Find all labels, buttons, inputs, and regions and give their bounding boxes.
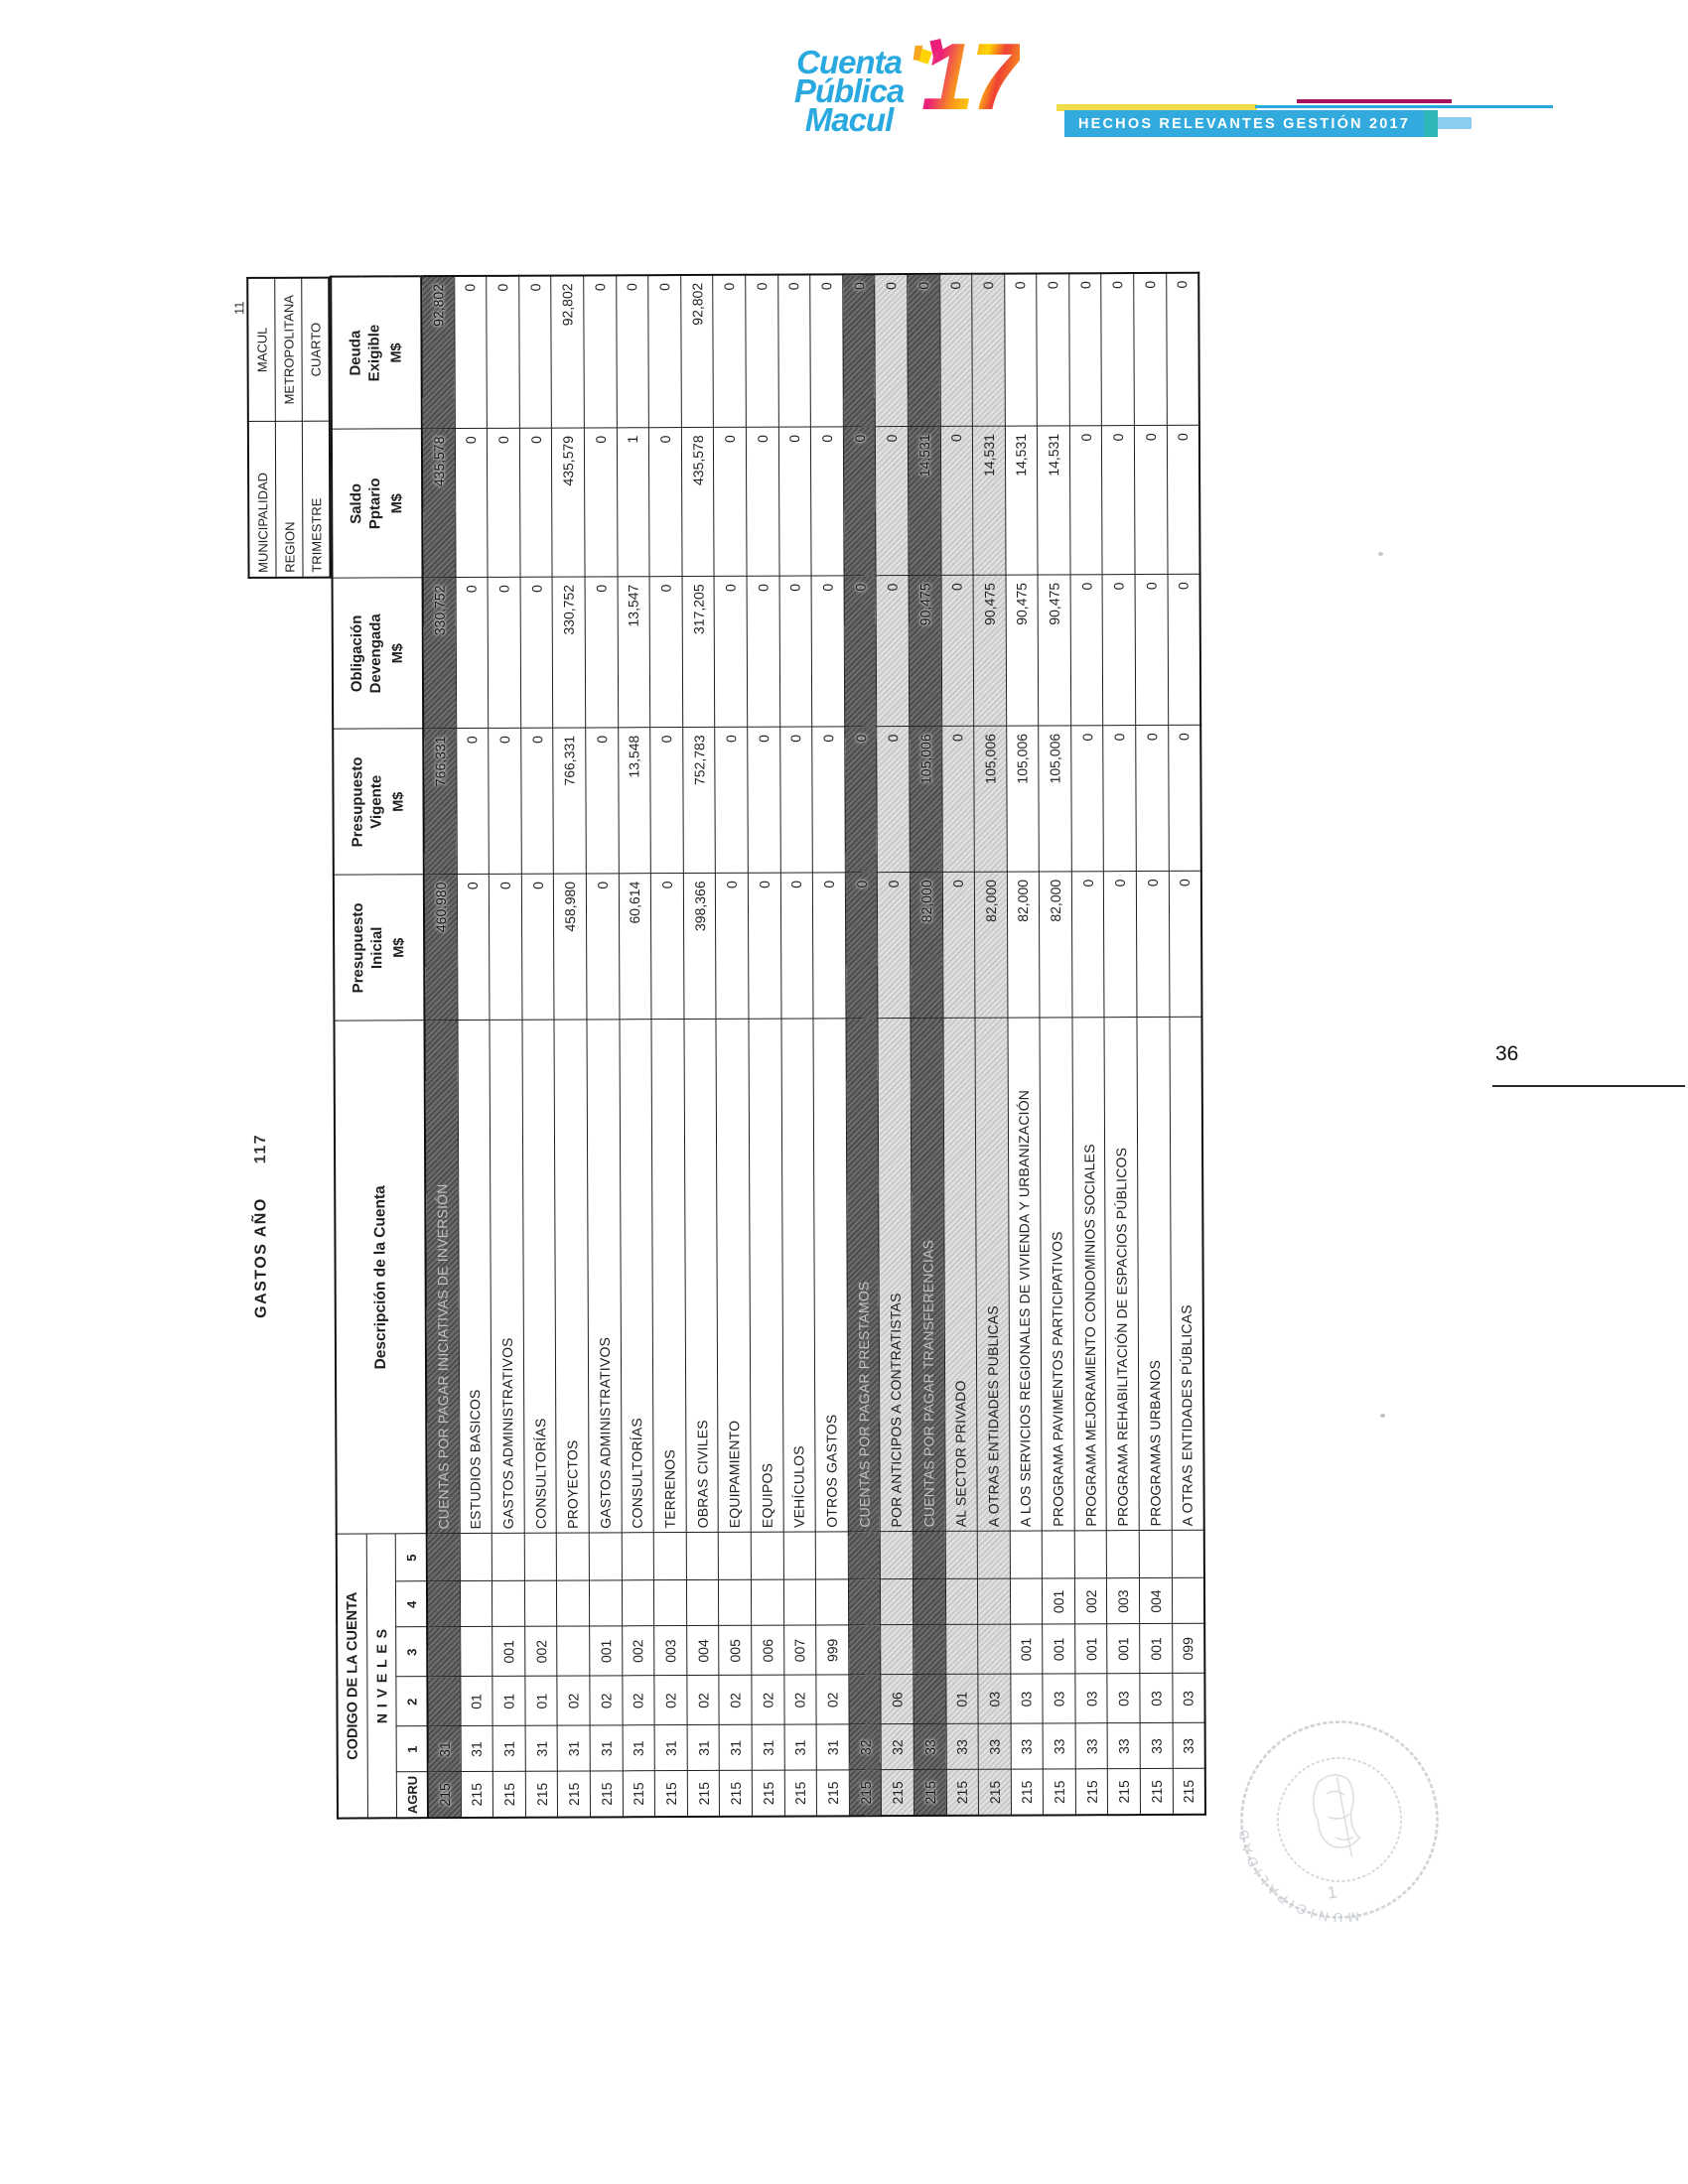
cell-nivel-3: 001: [1107, 1624, 1140, 1674]
cell-nivel-1: 31: [654, 1725, 687, 1771]
header-line: Saldo: [348, 431, 366, 577]
scan-speck: [1378, 552, 1383, 556]
cell-agru: 215: [492, 1772, 525, 1818]
cell-nivel-2: 01: [525, 1677, 558, 1726]
info-label-region: REGION: [275, 421, 303, 578]
cell-agru: 215: [525, 1772, 558, 1818]
cell-presupuesto-inicial: 0: [1169, 872, 1202, 1018]
cell-saldo-pptario: 14,531: [908, 427, 940, 576]
cell-presupuesto-vigente: 0: [586, 728, 619, 874]
header-descripcion: Descripción de la Cuenta: [334, 1021, 426, 1534]
cell-nivel-5: [1107, 1531, 1140, 1578]
header-presupuesto-vigente: Presupuesto Vigente M$: [333, 729, 424, 875]
banner-bar: HECHOS RELEVANTES GESTIÓN 2017: [1064, 110, 1424, 137]
cell-presupuesto-vigente: 0: [779, 727, 812, 873]
cell-nivel-5: [913, 1532, 945, 1579]
cell-nivel-1: 31: [784, 1724, 817, 1770]
cell-deuda-exigible: 0: [875, 274, 908, 427]
cell-presupuesto-inicial: 0: [716, 874, 749, 1020]
cell-nivel-2: 06: [881, 1675, 914, 1724]
cell-deuda-exigible: 0: [648, 275, 681, 428]
cell-presupuesto-vigente: 105,006: [910, 727, 942, 873]
cell-saldo-pptario: 0: [811, 427, 844, 576]
cell-descripcion: A OTRAS ENTIDADES PUBLICAS: [975, 1019, 1010, 1532]
cell-nivel-4: [460, 1581, 492, 1627]
cell-nivel-2: 02: [654, 1676, 687, 1725]
cell-presupuesto-inicial: 60,614: [619, 874, 651, 1020]
cell-nivel-3: [945, 1625, 978, 1675]
cell-agru: 215: [1075, 1769, 1108, 1815]
cell-saldo-pptario: 0: [519, 429, 552, 578]
cell-nivel-3: 006: [752, 1626, 784, 1676]
cell-agru: 215: [1108, 1769, 1141, 1815]
cell-presupuesto-vigente: 0: [1136, 726, 1169, 872]
cell-nivel-5: [751, 1533, 783, 1580]
cell-nivel-3: 007: [783, 1625, 816, 1675]
cell-presupuesto-vigente: 0: [650, 728, 683, 874]
cell-obligacion-devengada: 330,752: [423, 578, 457, 729]
cell-agru: 215: [1173, 1769, 1205, 1815]
header-line: Deuda: [347, 278, 365, 428]
cell-nivel-1: 33: [978, 1724, 1011, 1770]
stamp-inner-circle: [1269, 1749, 1410, 1890]
cell-nivel-4: [751, 1580, 783, 1626]
cell-saldo-pptario: 0: [778, 427, 811, 576]
cell-nivel-2: 02: [557, 1676, 590, 1725]
cell-nivel-3: 001: [1043, 1624, 1075, 1674]
cell-presupuesto-vigente: 13,548: [618, 728, 650, 874]
cell-nivel-3: [460, 1627, 492, 1677]
cell-obligacion-devengada: 90,475: [1038, 575, 1070, 726]
cell-nivel-3: [914, 1625, 946, 1675]
cell-descripcion: CUENTAS POR PAGAR TRANSFERENCIAS: [911, 1019, 945, 1532]
cell-nivel-2: 02: [719, 1676, 752, 1725]
cell-presupuesto-inicial: 0: [1071, 872, 1104, 1018]
cell-deuda-exigible: 92,802: [680, 275, 713, 428]
cell-obligacion-devengada: 0: [488, 578, 520, 729]
cell-nivel-4: [1010, 1578, 1043, 1624]
report-title-year: 117: [252, 1134, 269, 1163]
rotated-report-sheet: 11 GASTOS AÑO117 MUNICIPALIDAD MACUL REG…: [233, 271, 1130, 1820]
cell-obligacion-devengada: 0: [1135, 575, 1168, 726]
cell-nivel-5: [1043, 1531, 1075, 1578]
cell-nivel-3: 001: [1140, 1624, 1173, 1674]
info-label-municipalidad: MUNICIPALIDAD: [248, 421, 276, 578]
cell-deuda-exigible: 0: [842, 274, 875, 427]
cell-descripcion: CONSULTORÍAS: [620, 1020, 654, 1533]
header-level-2: 2: [396, 1677, 428, 1726]
banner-tail-line: [1438, 117, 1472, 129]
cell-agru: 215: [461, 1772, 493, 1818]
cell-nivel-4: [524, 1581, 557, 1627]
cell-presupuesto-inicial: 398,366: [683, 874, 716, 1020]
header-line: Obligación: [349, 580, 367, 728]
cell-nivel-2: 03: [1173, 1674, 1205, 1723]
info-value-cuarto: CUARTO: [302, 278, 330, 422]
banner-teal-endcap: [1424, 110, 1438, 137]
cell-presupuesto-inicial: 0: [521, 875, 554, 1021]
cell-deuda-exigible: 0: [616, 275, 648, 428]
cell-agru: 215: [654, 1771, 687, 1817]
cell-nivel-2: 02: [816, 1675, 849, 1724]
cell-presupuesto-inicial: 458,980: [554, 874, 587, 1020]
cell-presupuesto-inicial: 0: [490, 875, 522, 1021]
cell-obligacion-devengada: 90,475: [973, 576, 1006, 727]
cell-nivel-4: [848, 1579, 881, 1625]
cell-nivel-5: [1172, 1531, 1204, 1578]
cell-presupuesto-vigente: 105,006: [1006, 726, 1039, 872]
cell-nivel-2: 01: [945, 1675, 978, 1724]
cell-descripcion: PROGRAMAS URBANOS: [1137, 1018, 1172, 1531]
cell-presupuesto-vigente: 0: [715, 728, 748, 874]
page-number-rule: [1492, 1085, 1685, 1087]
cell-nivel-2: 01: [492, 1677, 525, 1726]
header-saldo-pptario: Saldo Pptario M$: [332, 429, 423, 578]
cell-descripcion: CUENTAS POR PAGAR PRESTAMOS: [846, 1019, 881, 1532]
cell-agru: 215: [882, 1770, 914, 1816]
banner-blue-line: [1255, 105, 1553, 108]
cell-nivel-5: [622, 1533, 654, 1580]
info-label-trimestre: TRIMESTRE: [302, 421, 330, 578]
report-title: GASTOS AÑO117: [252, 1134, 271, 1318]
header-line: Inicial: [368, 877, 387, 1020]
cell-nivel-5: [524, 1534, 557, 1581]
info-row: MUNICIPALIDAD MACUL: [247, 278, 276, 578]
header-line: Presupuesto: [349, 731, 367, 874]
info-row: TRIMESTRE CUARTO: [302, 278, 331, 578]
cell-presupuesto-vigente: 0: [520, 729, 553, 875]
cell-nivel-2: [849, 1675, 882, 1724]
cell-nivel-3: [848, 1625, 881, 1675]
cell-obligacion-devengada: 0: [779, 576, 812, 727]
cell-presupuesto-vigente: 766,331: [553, 728, 586, 874]
cell-nivel-3: 002: [622, 1626, 654, 1676]
header-codigo: CODIGO DE LA CUENTA: [337, 1534, 368, 1818]
cell-presupuesto-inicial: 0: [812, 873, 845, 1019]
cell-nivel-4: [913, 1579, 945, 1625]
cell-deuda-exigible: 0: [454, 276, 487, 429]
cell-nivel-1: 31: [719, 1725, 752, 1771]
cell-nivel-3: [881, 1625, 914, 1675]
cell-nivel-4: [945, 1579, 978, 1625]
cell-nivel-4: [557, 1580, 590, 1626]
cell-saldo-pptario: 0: [714, 428, 747, 577]
cell-presupuesto-inicial: 0: [942, 873, 975, 1019]
cell-nivel-4: 004: [1140, 1578, 1173, 1624]
logo-year-digits: 17: [921, 24, 1020, 130]
cell-saldo-pptario: 14,531: [1005, 426, 1038, 575]
cell-obligacion-devengada: 0: [714, 577, 747, 728]
cell-nivel-2: 02: [622, 1676, 654, 1725]
cell-presupuesto-inicial: 0: [748, 874, 780, 1020]
logo-apostrophe: ': [908, 34, 921, 98]
cell-descripcion: POR ANTICIPOS A CONTRATISTAS: [878, 1019, 913, 1532]
cell-nivel-3: 002: [524, 1627, 557, 1677]
cell-presupuesto-vigente: 752,783: [682, 728, 715, 874]
cell-nivel-4: 003: [1107, 1578, 1140, 1624]
cell-nivel-4: [492, 1581, 525, 1627]
cell-nivel-4: [816, 1579, 849, 1625]
header-unit: M$: [388, 580, 407, 728]
cell-deuda-exigible: 0: [1101, 273, 1134, 426]
cell-presupuesto-vigente: 0: [844, 727, 877, 873]
cell-saldo-pptario: 435,578: [422, 429, 456, 578]
cell-agru: 215: [816, 1770, 849, 1816]
cell-descripcion: A OTRAS ENTIDADES PÚBLICAS: [1170, 1018, 1204, 1531]
cell-nivel-1: 31: [492, 1726, 525, 1772]
cell-deuda-exigible: 0: [584, 275, 617, 428]
cell-saldo-pptario: 0: [1167, 426, 1200, 575]
budget-table: CODIGO DE LA CUENTA Descripción de la Cu…: [330, 272, 1206, 1820]
logo-year-17: '17: [908, 30, 1020, 125]
cell-nivel-3: 001: [492, 1627, 525, 1677]
cell-obligacion-devengada: 0: [811, 576, 844, 727]
cell-agru: 215: [428, 1772, 461, 1818]
header-line: Exigible: [365, 278, 384, 428]
header-unit: M$: [390, 877, 409, 1020]
cell-nivel-5: [589, 1533, 622, 1580]
cell-nivel-5: [783, 1532, 816, 1579]
cell-deuda-exigible: 0: [939, 274, 972, 427]
cell-descripcion: AL SECTOR PRIVADO: [942, 1019, 977, 1532]
cell-presupuesto-inicial: 0: [586, 874, 619, 1020]
cell-nivel-1: 33: [946, 1724, 979, 1770]
cell-presupuesto-inicial: 82,000: [974, 873, 1007, 1019]
cuenta-publica-logo: Cuenta Pública Macul '17: [780, 44, 1078, 143]
stamp-rim-text: MUNICIPALIDAD: [1235, 1810, 1360, 1941]
cell-agru: 215: [623, 1771, 655, 1817]
cell-agru: 215: [946, 1770, 979, 1816]
cell-descripcion: ESTUDIOS BASICOS: [458, 1021, 492, 1534]
cell-descripcion: PROYECTOS: [554, 1020, 589, 1533]
header-level-5: 5: [395, 1534, 427, 1581]
cell-deuda-exigible: 0: [908, 274, 940, 427]
cell-nivel-3: 003: [654, 1626, 687, 1676]
cell-obligacion-devengada: 0: [520, 578, 553, 729]
stamp-emblem-icon: [1310, 1772, 1363, 1860]
cell-nivel-5: [719, 1533, 752, 1580]
cell-deuda-exigible: 92,802: [551, 275, 584, 428]
cell-deuda-exigible: 0: [1134, 273, 1167, 426]
cell-saldo-pptario: 435,579: [552, 428, 585, 577]
info-value-metropolitana: METROPOLITANA: [275, 278, 303, 422]
cell-obligacion-devengada: 0: [747, 577, 779, 728]
cell-descripcion: VEHÍCULOS: [781, 1019, 816, 1532]
cell-nivel-2: [427, 1677, 460, 1726]
cell-saldo-pptario: 0: [940, 427, 973, 576]
cell-nivel-1: 31: [525, 1726, 558, 1772]
cell-agru: 215: [558, 1771, 591, 1817]
cell-presupuesto-inicial: 0: [1104, 872, 1137, 1018]
cell-deuda-exigible: 0: [810, 274, 843, 427]
cell-descripcion: OBRAS CIVILES: [684, 1020, 719, 1533]
cell-nivel-1: 31: [461, 1726, 493, 1772]
cell-obligacion-devengada: 0: [1070, 575, 1103, 726]
cell-nivel-2: 01: [460, 1677, 492, 1726]
cell-nivel-4: [881, 1579, 914, 1625]
cell-agru: 215: [978, 1770, 1011, 1816]
cell-nivel-2: [914, 1675, 946, 1724]
stamp-digit: 1: [1326, 1882, 1337, 1902]
cell-presupuesto-vigente: 0: [812, 727, 845, 873]
cell-nivel-5: [460, 1534, 492, 1581]
logo-wordmark: Cuenta Pública Macul: [780, 48, 917, 134]
header-line: Pptario: [366, 431, 385, 577]
header-unit: M$: [389, 731, 408, 874]
cell-nivel-2: 03: [1043, 1674, 1075, 1723]
cell-descripcion: PROGRAMA REHABILITACIÓN DE ESPACIOS PÚBL…: [1104, 1018, 1139, 1531]
cell-nivel-2: 03: [1075, 1674, 1108, 1723]
cell-deuda-exigible: 0: [1004, 273, 1037, 426]
cell-agru: 215: [914, 1770, 946, 1816]
stamp-outer-circle: [1227, 1707, 1451, 1931]
cell-descripcion: EQUIPOS: [749, 1020, 783, 1533]
cell-nivel-1: 32: [881, 1724, 914, 1770]
cell-descripcion: GASTOS ADMINISTRATIVOS: [490, 1021, 524, 1534]
cell-nivel-3: 001: [1010, 1624, 1043, 1674]
header-presupuesto-inicial: Presupuesto Inicial M$: [334, 875, 425, 1021]
header-level-agru: AGRU: [396, 1772, 428, 1818]
cell-saldo-pptario: 14,531: [1038, 426, 1070, 575]
cell-obligacion-devengada: 13,547: [618, 577, 650, 728]
cell-presupuesto-vigente: 0: [941, 727, 974, 873]
cell-presupuesto-vigente: 0: [1168, 726, 1201, 872]
cell-nivel-1: 33: [1075, 1723, 1108, 1769]
cell-presupuesto-inicial: 0: [845, 873, 878, 1019]
cell-obligacion-devengada: 0: [585, 577, 618, 728]
budget-table-header: CODIGO DE LA CUENTA Descripción de la Cu…: [331, 276, 428, 1818]
cell-deuda-exigible: 0: [487, 276, 519, 429]
header-unit: M$: [387, 278, 406, 428]
cell-nivel-2: 03: [1140, 1674, 1173, 1723]
cell-saldo-pptario: 0: [1134, 426, 1167, 575]
cell-nivel-5: [1010, 1531, 1043, 1578]
ink-stamp: MUNICIPALIDAD 1: [1218, 1699, 1462, 1942]
cell-presupuesto-vigente: 105,006: [974, 727, 1007, 873]
cell-presupuesto-inicial: 460,980: [424, 875, 458, 1021]
cell-nivel-4: [589, 1580, 622, 1626]
cell-nivel-1: 33: [1140, 1723, 1173, 1769]
header-deuda-exigible: Deuda Exigible M$: [331, 276, 422, 429]
cell-nivel-2: 02: [590, 1676, 623, 1725]
cell-nivel-1: 31: [557, 1725, 590, 1771]
cell-nivel-3: 005: [719, 1626, 752, 1676]
cell-nivel-5: [1139, 1531, 1172, 1578]
cell-agru: 215: [1011, 1769, 1044, 1815]
cell-descripcion: CUENTAS POR PAGAR INICIATIVAS DE INVERSI…: [424, 1021, 459, 1534]
cell-nivel-1: 32: [849, 1724, 882, 1770]
cell-presupuesto-inicial: 0: [457, 875, 490, 1021]
cell-saldo-pptario: 0: [455, 429, 488, 578]
header-line: Vigente: [367, 731, 386, 874]
header-line: Presupuesto: [350, 877, 368, 1020]
cell-nivel-3: 099: [1172, 1624, 1204, 1674]
cell-deuda-exigible: 0: [1069, 273, 1102, 426]
cell-nivel-2: 03: [1107, 1674, 1140, 1723]
cell-nivel-3: 001: [1075, 1624, 1108, 1674]
logo-word-macul: Macul: [780, 105, 917, 134]
cell-nivel-5: [1074, 1531, 1107, 1578]
cell-nivel-5: [557, 1533, 590, 1580]
info-value-macul: MACUL: [247, 278, 275, 422]
cell-deuda-exigible: 0: [777, 274, 810, 427]
cell-presupuesto-inicial: 0: [878, 873, 911, 1019]
cell-nivel-5: [945, 1532, 978, 1579]
cell-nivel-2: 02: [687, 1676, 720, 1725]
cell-nivel-4: [978, 1579, 1011, 1625]
cell-obligacion-devengada: 0: [456, 578, 489, 729]
cell-agru: 215: [784, 1770, 817, 1816]
cell-obligacion-devengada: 0: [649, 577, 682, 728]
cell-presupuesto-vigente: 0: [489, 729, 521, 875]
banner-text: HECHOS RELEVANTES GESTIÓN 2017: [1078, 116, 1410, 132]
cell-presupuesto-inicial: 82,000: [1040, 872, 1072, 1018]
cell-nivel-4: [783, 1579, 816, 1625]
cell-nivel-5: [881, 1532, 914, 1579]
cell-nivel-5: [686, 1533, 719, 1580]
cell-saldo-pptario: 0: [1102, 426, 1135, 575]
cell-descripcion: PROGRAMA PAVIMENTOS PARTICIPATIVOS: [1040, 1018, 1074, 1531]
header-obligacion-devengada: Obligación Devengada M$: [333, 578, 424, 729]
header-niveles: N I V E L E S: [366, 1534, 396, 1818]
cell-deuda-exigible: 92,802: [421, 276, 455, 429]
cell-descripcion: OTROS GASTOS: [813, 1019, 848, 1532]
cell-nivel-4: [654, 1580, 687, 1626]
cell-obligacion-devengada: 0: [844, 576, 877, 727]
cell-deuda-exigible: 0: [713, 275, 746, 428]
header-unit: M$: [388, 431, 407, 577]
cell-descripcion: CONSULTORÍAS: [522, 1021, 557, 1534]
cell-obligacion-devengada: 90,475: [909, 576, 941, 727]
cell-nivel-3: 004: [686, 1626, 719, 1676]
cell-agru: 215: [1140, 1769, 1173, 1815]
cell-obligacion-devengada: 330,752: [552, 577, 585, 728]
cell-nivel-4: [427, 1581, 460, 1627]
cell-nivel-5: [977, 1532, 1010, 1579]
cell-obligacion-devengada: 90,475: [1006, 575, 1039, 726]
cell-presupuesto-vigente: 0: [877, 727, 910, 873]
cell-agru: 215: [720, 1771, 753, 1817]
cell-nivel-4: [622, 1580, 654, 1626]
cell-descripcion: EQUIPAMIENTO: [716, 1020, 751, 1533]
cell-saldo-pptario: 1: [617, 428, 649, 577]
cell-nivel-5: [653, 1533, 686, 1580]
cell-nivel-5: [492, 1534, 524, 1581]
cell-saldo-pptario: 0: [649, 428, 682, 577]
cell-presupuesto-inicial: 82,000: [1007, 872, 1040, 1018]
cell-nivel-5: [815, 1532, 848, 1579]
cell-nivel-4: [686, 1580, 719, 1626]
cell-nivel-1: 31: [752, 1725, 784, 1771]
cell-deuda-exigible: 0: [518, 276, 551, 429]
cell-presupuesto-inicial: 0: [651, 874, 684, 1020]
cell-nivel-1: 31: [687, 1725, 720, 1771]
cell-nivel-4: [1172, 1578, 1204, 1624]
cell-deuda-exigible: 0: [746, 275, 778, 428]
info-row: REGION METROPOLITANA: [275, 278, 303, 578]
cell-nivel-4: 002: [1074, 1578, 1107, 1624]
cell-saldo-pptario: 0: [876, 427, 909, 576]
cell-saldo-pptario: 0: [746, 428, 778, 577]
cell-nivel-3: [557, 1626, 590, 1676]
cell-presupuesto-vigente: 0: [456, 729, 489, 875]
cell-presupuesto-inicial: 0: [780, 873, 813, 1019]
cell-agru: 215: [1044, 1769, 1076, 1815]
cell-nivel-3: 001: [590, 1626, 623, 1676]
cell-obligacion-devengada: 317,205: [682, 577, 715, 728]
cell-nivel-2: 03: [1011, 1674, 1044, 1723]
cell-nivel-1: 31: [590, 1725, 623, 1771]
